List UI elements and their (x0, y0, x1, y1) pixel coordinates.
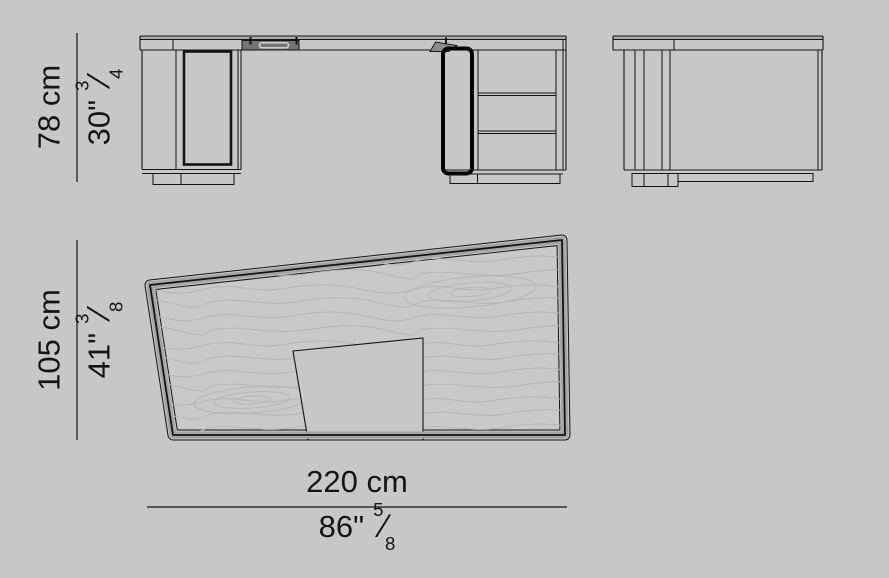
top-plan-view (145, 235, 570, 445)
height-dimension-label: 78 cm 30"3⁄4 (34, 65, 121, 149)
width-fraction: 5⁄8 (373, 509, 395, 544)
width-dimension-label: 220 cm 86"5⁄8 (306, 466, 408, 548)
width-cm-value: 220 cm (306, 466, 408, 497)
side-feet (632, 174, 813, 187)
side-base (678, 174, 813, 182)
side-desktop-edge-band (613, 36, 823, 39)
technical-drawing (0, 0, 889, 578)
height-fraction: 3⁄4 (82, 69, 117, 91)
pedestal-footprint (293, 338, 423, 440)
left-pedestal (142, 50, 241, 185)
front-elevation-view (140, 36, 566, 185)
width-inches-value: 86"5⁄8 (319, 510, 396, 548)
depth-inches-value: 41"3⁄8 (83, 302, 121, 379)
side-elevation-view (613, 36, 823, 187)
right-pedestal-drawers (443, 50, 566, 184)
desktop-edge-band (140, 36, 566, 39)
height-inches-value: 30"3⁄4 (83, 69, 121, 146)
side-body (624, 50, 822, 170)
left-pedestal-plinth (153, 174, 234, 185)
furniture-dimension-diagram: 78 cm 30"3⁄4 105 cm 41"3⁄8 220 cm 86"5⁄8 (0, 0, 889, 578)
height-cm-value: 78 cm (34, 65, 65, 149)
depth-cm-value: 105 cm (34, 289, 65, 391)
left-door-panel (184, 52, 231, 165)
depth-fraction: 3⁄8 (82, 302, 117, 324)
highlighted-leg-panel (443, 49, 472, 174)
depth-dimension-label: 105 cm 41"3⁄8 (34, 289, 121, 391)
